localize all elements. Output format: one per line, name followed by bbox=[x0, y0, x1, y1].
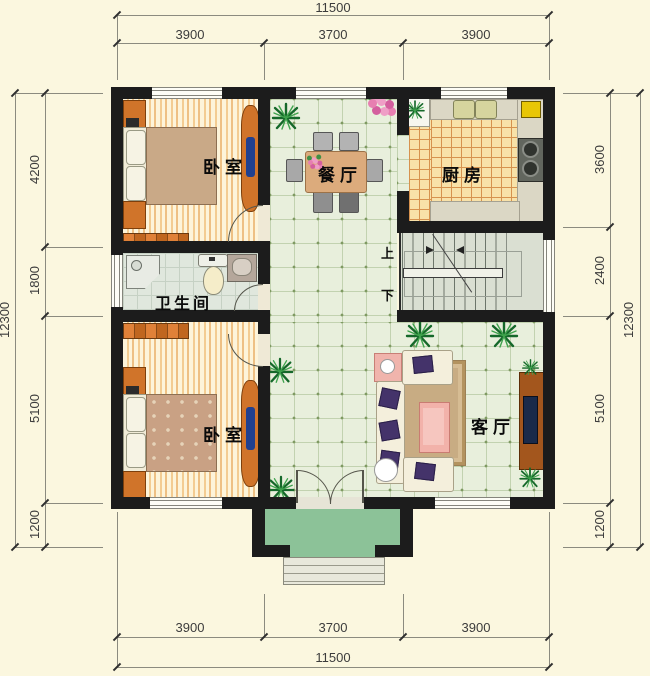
wall bbox=[397, 310, 555, 322]
porch bbox=[265, 509, 400, 545]
dim-right-seg-4: 1200 bbox=[592, 500, 608, 550]
wall bbox=[364, 497, 435, 509]
plant-icon bbox=[270, 101, 302, 133]
wall bbox=[258, 253, 270, 284]
entry-door-leaf bbox=[362, 470, 364, 503]
bedside-item bbox=[126, 118, 139, 127]
kitchen-tile-main bbox=[431, 117, 521, 203]
table-flowers-icon bbox=[308, 160, 313, 165]
stove-burner-2 bbox=[522, 160, 539, 177]
wall bbox=[510, 497, 555, 509]
dim-line bbox=[45, 93, 46, 547]
window bbox=[152, 87, 222, 99]
bedroom-bottom-cabinet bbox=[123, 323, 189, 339]
dim-extension bbox=[264, 43, 265, 80]
kitchen-counter-bottom bbox=[430, 201, 520, 223]
dim-line bbox=[117, 667, 549, 668]
bathroom-sink bbox=[232, 258, 252, 276]
room-label-bedroom-top: 卧室 bbox=[203, 153, 247, 178]
dining-chair bbox=[313, 191, 333, 213]
dim-extension bbox=[45, 316, 103, 317]
room-label-kitchen: 厨房 bbox=[442, 161, 486, 186]
kitchen-appliance bbox=[521, 101, 541, 118]
wardrobe-mirror bbox=[246, 137, 255, 177]
window bbox=[435, 497, 510, 509]
wall bbox=[397, 99, 409, 135]
dim-left-seg-3: 5100 bbox=[27, 384, 43, 434]
nightstand bbox=[123, 471, 146, 498]
pillow bbox=[126, 166, 146, 201]
sofa-pillow bbox=[414, 462, 436, 481]
wall bbox=[258, 99, 270, 205]
dim-line bbox=[610, 93, 611, 547]
wall bbox=[366, 87, 441, 99]
dining-chair bbox=[313, 132, 333, 151]
dim-extension bbox=[403, 43, 404, 80]
wall bbox=[543, 87, 555, 240]
wall bbox=[111, 87, 123, 255]
dining-chair bbox=[339, 132, 359, 151]
dim-tick bbox=[636, 543, 644, 551]
toilet-button bbox=[209, 257, 215, 261]
stair-label-up: 上 bbox=[381, 243, 394, 262]
porch-wall bbox=[252, 545, 290, 557]
dim-top-seg-1: 3900 bbox=[160, 27, 220, 42]
dim-right-seg-3: 5100 bbox=[592, 384, 608, 434]
dim-left-seg-2: 1800 bbox=[27, 256, 43, 306]
wall bbox=[543, 312, 555, 509]
sofa-pillow bbox=[378, 419, 400, 441]
wall bbox=[222, 87, 296, 99]
entry-steps bbox=[283, 557, 385, 585]
porch-lower bbox=[290, 545, 375, 557]
stair-arrow-right-icon bbox=[426, 246, 434, 254]
window bbox=[543, 240, 555, 312]
dim-extension bbox=[403, 594, 404, 637]
flowers-icon bbox=[368, 99, 377, 108]
dim-extension bbox=[264, 594, 265, 637]
room-label-living: 客厅 bbox=[471, 413, 515, 438]
entry-door-leaf bbox=[296, 470, 298, 503]
dim-left-overall: 12300 bbox=[0, 292, 13, 348]
dining-chair bbox=[286, 159, 303, 182]
stair-arrow-left-icon bbox=[456, 246, 464, 254]
dim-extension bbox=[45, 503, 103, 504]
dim-extension bbox=[117, 15, 118, 80]
side-table-plate bbox=[380, 359, 395, 374]
shower-drain bbox=[131, 260, 142, 271]
room-label-dining: 餐厅 bbox=[318, 161, 362, 186]
floor-plan: 卧室 餐厅 厨房 卫生间 卧室 客厅 上 下 11500 3900 3700 3… bbox=[0, 0, 650, 676]
kitchen-entry-floor bbox=[397, 135, 409, 191]
dim-extension bbox=[563, 227, 610, 228]
window bbox=[150, 497, 222, 509]
dim-extension bbox=[563, 316, 610, 317]
window bbox=[296, 87, 366, 99]
wall bbox=[222, 497, 296, 509]
stove-burner-1 bbox=[522, 141, 539, 158]
dim-line bbox=[117, 637, 549, 638]
dim-line bbox=[117, 15, 549, 16]
round-table bbox=[374, 458, 398, 482]
wall bbox=[111, 497, 150, 509]
wall bbox=[111, 241, 270, 253]
dining-chair bbox=[366, 159, 383, 182]
stair-label-down: 下 bbox=[381, 285, 394, 304]
dim-extension bbox=[15, 93, 103, 94]
dim-extension bbox=[563, 93, 640, 94]
plant-icon bbox=[488, 319, 520, 351]
wall bbox=[258, 366, 270, 497]
wardrobe-mirror bbox=[246, 407, 255, 450]
dim-left-seg-1: 4200 bbox=[27, 145, 43, 195]
dim-line bbox=[15, 93, 16, 547]
plant-icon bbox=[404, 319, 436, 351]
dim-extension bbox=[549, 512, 550, 667]
dim-line bbox=[117, 43, 549, 44]
dim-extension bbox=[117, 512, 118, 667]
dim-bottom-seg-2: 3700 bbox=[303, 620, 363, 635]
dim-tick bbox=[545, 663, 553, 671]
nightstand bbox=[123, 201, 146, 229]
room-label-bathroom: 卫生间 bbox=[155, 290, 212, 314]
window bbox=[441, 87, 507, 99]
plant-icon bbox=[518, 466, 542, 490]
room-label-bedroom-bottom: 卧室 bbox=[203, 421, 247, 446]
dim-extension bbox=[45, 247, 103, 248]
pillow bbox=[126, 433, 146, 468]
kitchen-sink-right bbox=[475, 100, 497, 119]
dim-bottom-seg-1: 3900 bbox=[160, 620, 220, 635]
pillow bbox=[126, 130, 146, 165]
stair-handrail bbox=[403, 268, 503, 278]
sofa-pillow bbox=[378, 387, 401, 410]
dim-right-overall: 12300 bbox=[621, 292, 637, 348]
dining-chair bbox=[339, 191, 359, 213]
dim-bottom-seg-3: 3900 bbox=[446, 620, 506, 635]
wall bbox=[111, 307, 123, 509]
dim-right-seg-2: 2400 bbox=[592, 246, 608, 296]
coffee-table-top bbox=[423, 408, 444, 445]
dim-line bbox=[640, 93, 641, 547]
dim-top-overall: 11500 bbox=[303, 0, 363, 15]
dim-extension bbox=[549, 15, 550, 80]
porch-wall bbox=[375, 545, 413, 557]
window bbox=[111, 255, 123, 307]
plant-icon bbox=[521, 358, 540, 377]
dim-top-seg-3: 3900 bbox=[446, 27, 506, 42]
wall bbox=[258, 322, 270, 334]
wall bbox=[397, 221, 555, 233]
dim-top-seg-2: 3700 bbox=[303, 27, 363, 42]
pillow bbox=[126, 397, 146, 432]
tv bbox=[523, 396, 538, 444]
dim-bottom-overall: 11500 bbox=[303, 650, 363, 665]
dim-left-seg-4: 1200 bbox=[27, 500, 43, 550]
kitchen-sink-left bbox=[453, 100, 475, 119]
dim-right-seg-1: 3600 bbox=[592, 135, 608, 185]
sofa-pillow bbox=[412, 355, 434, 374]
